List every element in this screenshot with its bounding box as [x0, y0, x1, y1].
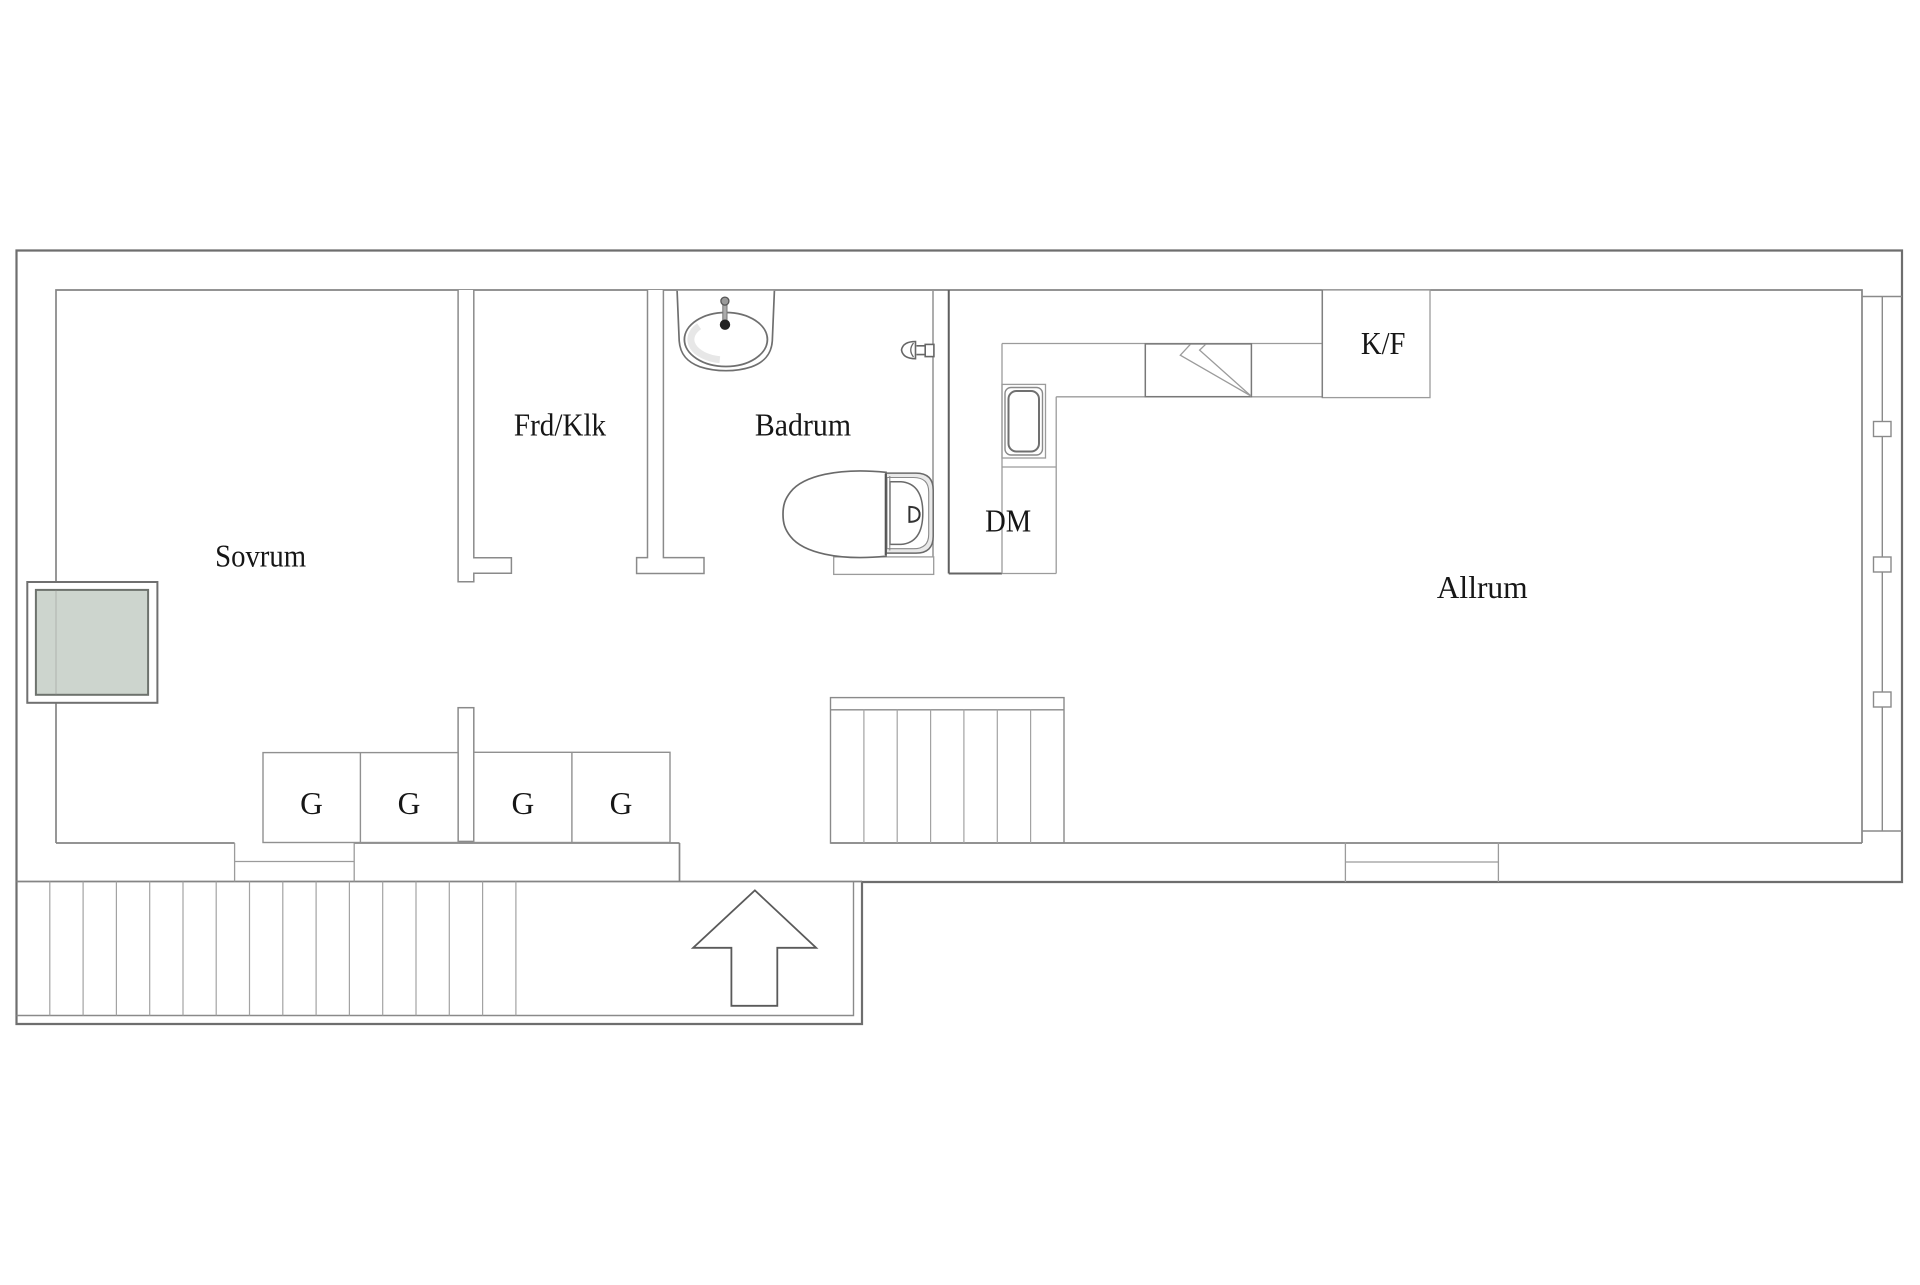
svg-text:Sovrum: Sovrum [215, 539, 306, 574]
svg-text:G: G [300, 786, 323, 821]
svg-text:G: G [610, 786, 633, 821]
svg-text:Frd/Klk: Frd/Klk [514, 408, 606, 443]
svg-text:K/F: K/F [1361, 326, 1406, 361]
svg-text:Allrum: Allrum [1437, 570, 1528, 605]
svg-text:G: G [398, 786, 421, 821]
svg-text:Badrum: Badrum [755, 408, 852, 443]
svg-text:G: G [512, 786, 535, 821]
svg-text:DM: DM [985, 503, 1031, 538]
